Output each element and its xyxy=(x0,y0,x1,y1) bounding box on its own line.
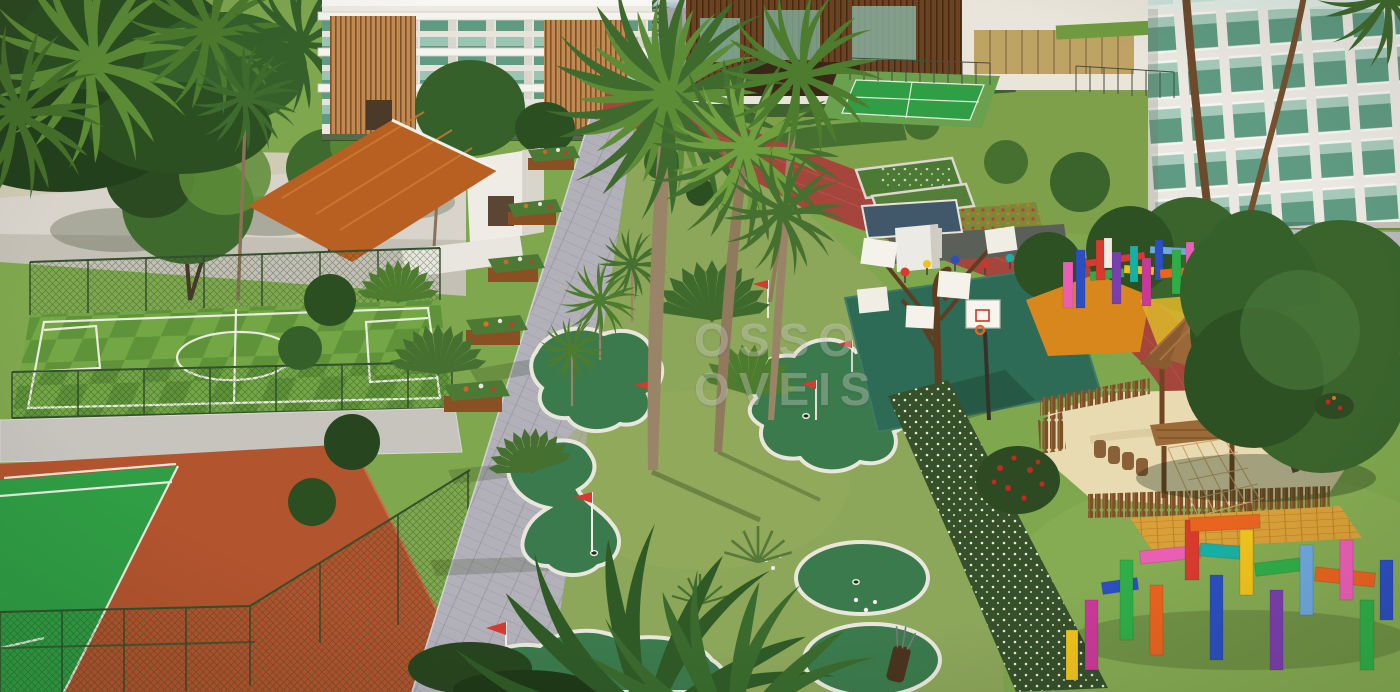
watermark-line-1: OSSO xyxy=(694,316,880,365)
aerial-render: OSSO OVEIS xyxy=(0,0,1400,692)
watermark-line-2: OVEIS xyxy=(694,365,880,414)
watermark: OSSO OVEIS xyxy=(694,316,880,414)
